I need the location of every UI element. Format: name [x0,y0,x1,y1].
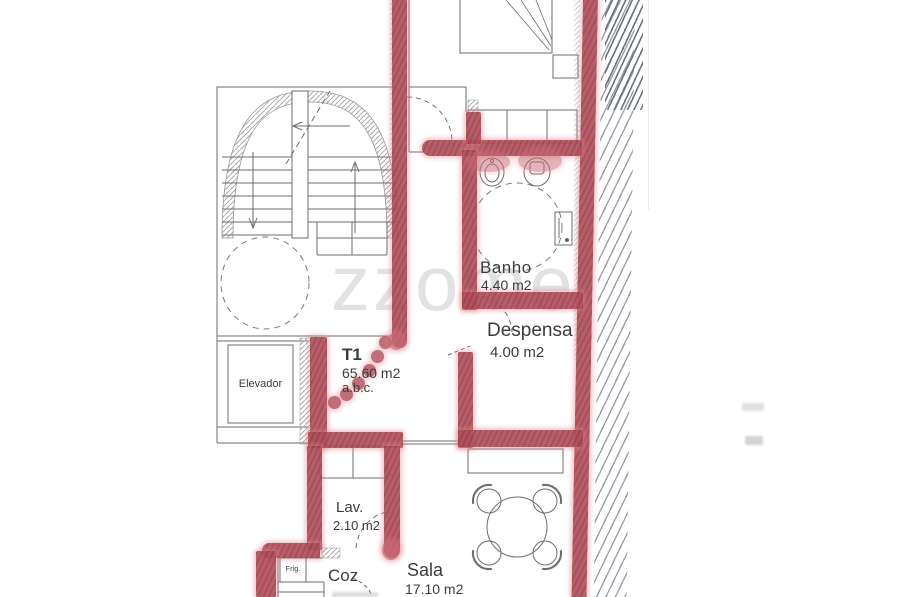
marker-smear [518,150,562,172]
marker-smear [382,540,400,560]
floorplan-scan: zzome® Banho 4.40 m2 Despensa 4.00 m2 T1… [0,0,900,597]
room-label-t1: T1 [342,345,362,365]
party-wall-hatch-dense [605,0,643,110]
room-label-coz: Coz [328,566,358,586]
marker-wall-banho-despensa [462,292,583,309]
marker-wall-left-upper [392,0,407,348]
cut-off-text-smudge [332,592,378,597]
marker-wall-bottom-left [256,551,276,597]
chair [542,485,561,504]
watermark: zzome® [331,244,586,322]
room-label-sala: Sala [407,560,443,581]
scan-smudge [745,436,763,445]
marker-smear [468,152,510,172]
dining-table [487,497,547,557]
room-area-lav: 2.10 m2 [333,518,380,533]
room-label-lav: Lav. [336,499,363,516]
room-area-banho: 4.40 m2 [481,277,532,293]
sala-furniture [402,441,563,569]
marker-wall-despensa-sala [458,430,583,447]
room-label-despensa: Despensa [487,320,573,342]
scan-artifact-line [648,0,649,210]
room-area-despensa: 4.00 m2 [490,344,544,361]
room-label-banho: Banho [480,258,532,278]
room-area-sala: 17.10 m2 [405,581,463,597]
room-note-t1: a.b.c. [342,380,374,395]
stair-down-arrow [249,152,257,228]
sideboard [468,449,563,473]
marker-dot [328,396,341,409]
marker-wall-banho-left [462,150,477,310]
wardrobe [468,110,577,143]
chair [473,550,492,569]
room-area-t1: 65.60 m2 [342,365,400,381]
corridor-lines [407,0,466,152]
door-swing-arc [407,97,452,141]
room-label-elevador: Elevador [228,345,293,423]
marker-dot [371,350,384,363]
stair-arch [222,91,398,238]
marker-wall-lav-left [307,446,322,550]
marker-smear [388,332,404,350]
chair [473,485,492,504]
room-label-frig: Frig. [280,559,306,577]
scan-smudge [742,403,764,411]
marker-wall-stub [466,112,481,144]
turning-circle-hall [221,237,309,329]
chair [542,550,561,569]
